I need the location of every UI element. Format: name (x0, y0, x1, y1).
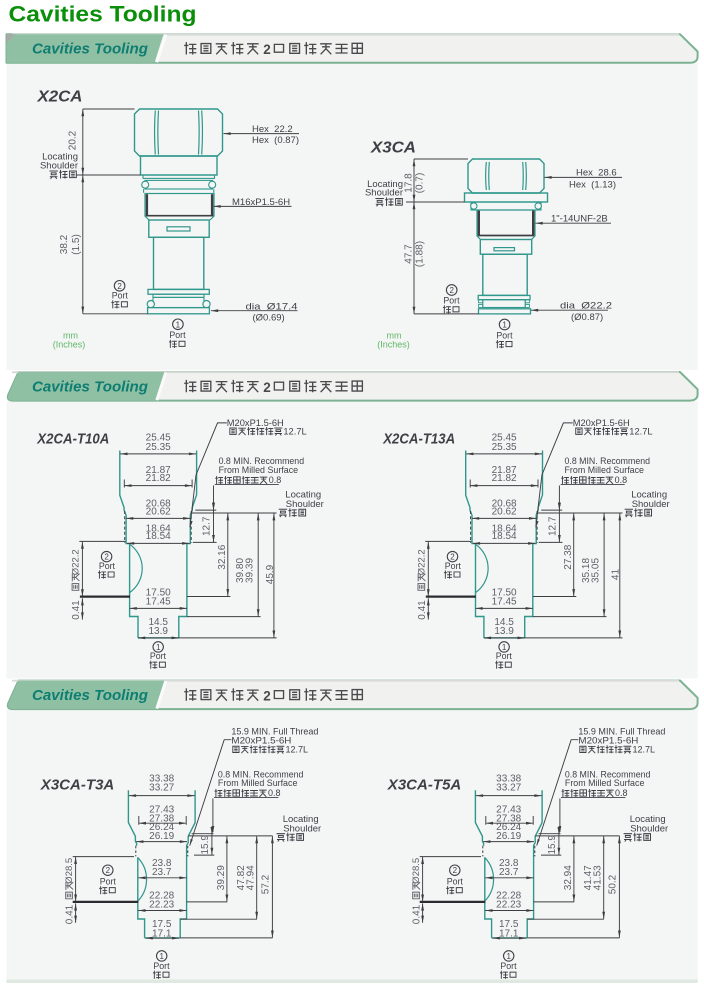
svg-text:Port: Port (496, 330, 513, 340)
svg-text:0.8: 0.8 (268, 788, 281, 798)
svg-text:Cavities Tooling: Cavities Tooling (32, 687, 148, 704)
svg-text:35.05: 35.05 (590, 558, 601, 583)
svg-text:Cavities Tooling: Cavities Tooling (9, 1, 197, 26)
svg-text:22.23: 22.23 (496, 899, 521, 910)
svg-text:2: 2 (263, 380, 271, 395)
svg-text:X2CA-T10A: X2CA-T10A (36, 431, 109, 448)
svg-text:12.7: 12.7 (547, 516, 558, 536)
svg-text:2: 2 (449, 286, 454, 295)
svg-text:12.7L: 12.7L (283, 426, 306, 436)
svg-text:Ø28.5: Ø28.5 (64, 858, 75, 884)
svg-text:0.8: 0.8 (615, 788, 628, 798)
svg-text:Ø22.2: Ø22.2 (71, 549, 82, 575)
svg-text:27.38: 27.38 (563, 544, 574, 569)
svg-text:Cavities Tooling: Cavities Tooling (32, 378, 148, 395)
svg-text:X3CA: X3CA (370, 140, 416, 157)
svg-text:25.35: 25.35 (492, 442, 517, 453)
svg-text:0.41: 0.41 (64, 904, 75, 924)
svg-text:50.2: 50.2 (608, 874, 619, 894)
svg-text:26.19: 26.19 (149, 831, 174, 842)
svg-text:M20xP1.5-6H: M20xP1.5-6H (227, 418, 284, 429)
svg-text:23.7: 23.7 (152, 867, 172, 878)
svg-text:Port: Port (443, 296, 460, 306)
svg-text:41: 41 (611, 569, 622, 581)
svg-text:17.45: 17.45 (146, 597, 171, 608)
svg-text:32.94: 32.94 (563, 865, 574, 890)
svg-text:17.45: 17.45 (492, 597, 517, 608)
svg-text:Ø28.5: Ø28.5 (411, 858, 422, 884)
svg-text:0.41: 0.41 (71, 600, 82, 620)
svg-text:20.62: 20.62 (492, 506, 517, 517)
svg-text:Shoulder: Shoulder (286, 499, 324, 510)
svg-text:(1.88): (1.88) (415, 241, 426, 267)
svg-text:17.8: 17.8 (403, 173, 414, 193)
svg-text:Shoulder: Shoulder (365, 187, 403, 198)
svg-text:Port: Port (169, 330, 186, 340)
svg-text:Port: Port (99, 561, 116, 571)
svg-text:(Inches): (Inches) (377, 340, 410, 350)
svg-text:21.82: 21.82 (492, 473, 517, 484)
svg-text:0.41: 0.41 (411, 904, 422, 924)
svg-text:0.8: 0.8 (269, 475, 282, 485)
svg-text:20.62: 20.62 (146, 506, 171, 517)
svg-text:Port: Port (500, 961, 517, 971)
svg-text:47.94: 47.94 (245, 865, 256, 890)
svg-text:33.27: 33.27 (149, 782, 174, 793)
svg-text:12.7L: 12.7L (633, 744, 656, 754)
svg-text:21.82: 21.82 (146, 473, 171, 484)
svg-text:26.19: 26.19 (496, 831, 521, 842)
svg-text:M20xP1.5-6H: M20xP1.5-6H (231, 735, 291, 746)
svg-text:Ø22.2: Ø22.2 (417, 549, 428, 575)
svg-text:From Milled Surface: From Milled Surface (565, 465, 645, 476)
svg-text:1: 1 (506, 952, 511, 961)
svg-text:(Inches): (Inches) (53, 340, 86, 350)
svg-text:Shoulder: Shoulder (40, 160, 78, 171)
svg-text:(1.5): (1.5) (71, 234, 82, 255)
svg-text:20.2: 20.2 (68, 130, 79, 150)
svg-text:1: 1 (502, 321, 507, 330)
svg-text:X3CA-T3A: X3CA-T3A (40, 776, 115, 793)
svg-text:15.9: 15.9 (200, 835, 211, 855)
svg-text:25.35: 25.35 (146, 442, 171, 453)
svg-text:0.41: 0.41 (417, 600, 428, 620)
svg-text:Port: Port (112, 291, 129, 301)
svg-text:Port: Port (496, 651, 513, 661)
svg-text:Shoulder: Shoulder (630, 824, 668, 835)
svg-text:0.8: 0.8 (615, 475, 628, 485)
svg-text:15.9: 15.9 (547, 835, 558, 855)
svg-text:Hex (1.13): Hex (1.13) (569, 179, 616, 190)
svg-text:12.7L: 12.7L (629, 426, 652, 436)
svg-text:Port: Port (100, 877, 117, 887)
svg-text:Port: Port (445, 561, 462, 571)
svg-text:2: 2 (106, 866, 111, 875)
svg-text:2: 2 (263, 688, 271, 703)
svg-text:2: 2 (117, 282, 122, 291)
svg-text:38.2: 38.2 (59, 234, 70, 254)
svg-text:32.16: 32.16 (217, 544, 228, 569)
svg-text:From Milled Surface: From Milled Surface (565, 778, 645, 789)
svg-text:dia Ø22.2: dia Ø22.2 (560, 300, 612, 311)
svg-text:M20xP1.5-6H: M20xP1.5-6H (573, 418, 630, 429)
svg-text:X2CA-T13A: X2CA-T13A (382, 431, 455, 448)
svg-text:47.7: 47.7 (403, 244, 414, 264)
svg-text:45.9: 45.9 (265, 564, 276, 584)
svg-text:39.29: 39.29 (216, 865, 227, 890)
svg-text:X3CA-T5A: X3CA-T5A (387, 776, 462, 793)
svg-text:18.54: 18.54 (492, 531, 517, 542)
svg-text:Port: Port (447, 877, 464, 887)
svg-text:(Ø0.87): (Ø0.87) (571, 312, 603, 323)
svg-text:13.9: 13.9 (494, 626, 514, 637)
svg-text:Cavities Tooling: Cavities Tooling (32, 41, 148, 58)
svg-text:Port: Port (150, 651, 167, 661)
svg-text:Hex 28.6: Hex 28.6 (576, 167, 617, 178)
svg-text:12.7: 12.7 (202, 516, 213, 536)
svg-text:2: 2 (263, 42, 271, 57)
svg-text:Hex (0.87): Hex (0.87) (252, 135, 299, 146)
svg-text:M20xP1.5-6H: M20xP1.5-6H (578, 735, 638, 746)
svg-text:57.2: 57.2 (261, 874, 272, 894)
svg-text:(Ø0.69): (Ø0.69) (253, 313, 285, 324)
svg-text:39.39: 39.39 (245, 558, 256, 583)
svg-text:Shoulder: Shoulder (632, 499, 670, 510)
svg-text:18.54: 18.54 (146, 531, 171, 542)
svg-text:Shoulder: Shoulder (283, 824, 321, 835)
svg-text:12.7L: 12.7L (286, 744, 309, 754)
svg-text:23.7: 23.7 (499, 867, 519, 878)
svg-text:From Milled Surface: From Milled Surface (219, 465, 299, 476)
svg-text:Port: Port (153, 961, 170, 971)
svg-text:(0.7): (0.7) (415, 173, 426, 194)
svg-text:1: 1 (159, 952, 164, 961)
svg-text:22.23: 22.23 (149, 899, 174, 910)
svg-text:X2CA: X2CA (36, 89, 82, 106)
svg-text:41.53: 41.53 (592, 865, 603, 890)
svg-text:33.27: 33.27 (496, 782, 521, 793)
svg-text:From Milled Surface: From Milled Surface (218, 778, 298, 789)
svg-text:13.9: 13.9 (148, 626, 168, 637)
svg-text:2: 2 (453, 866, 458, 875)
svg-text:1: 1 (176, 320, 181, 329)
